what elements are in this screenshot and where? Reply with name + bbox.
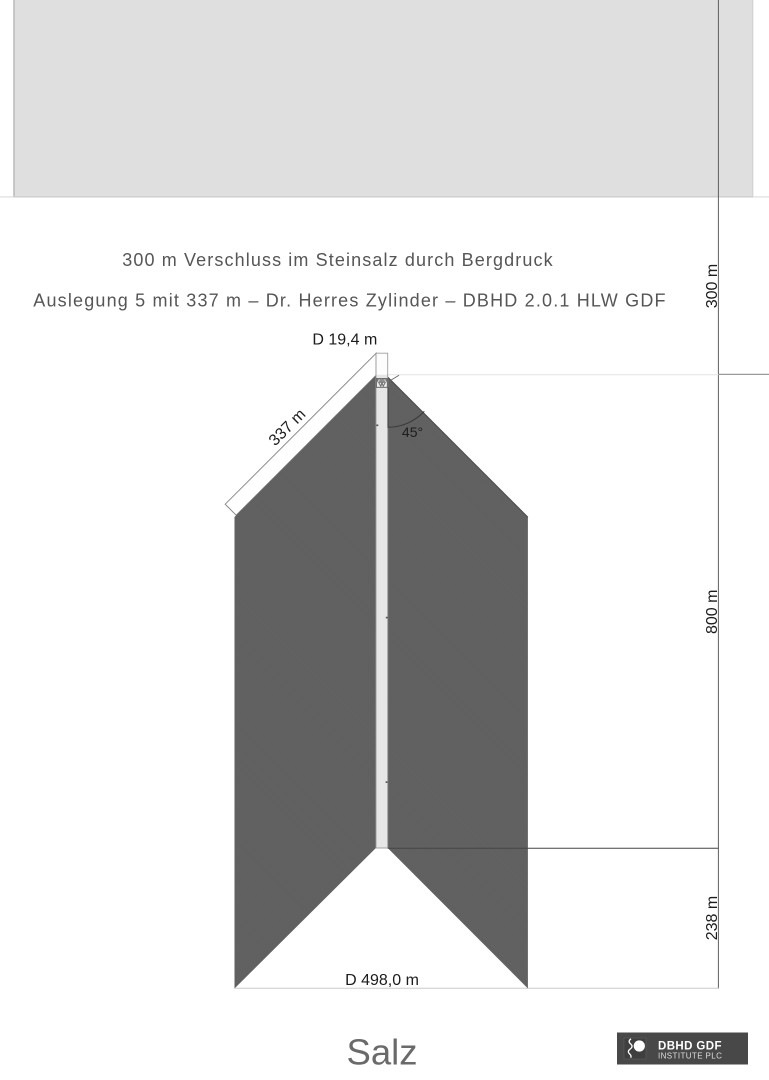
svg-text:D 498,0 m: D 498,0 m — [345, 972, 419, 989]
svg-text:300 m: 300 m — [704, 264, 721, 308]
svg-text:Auslegung 5 mit 337 m – Dr. He: Auslegung 5 mit 337 m – Dr. Herres Zylin… — [33, 291, 666, 311]
svg-text:800 m: 800 m — [704, 590, 721, 634]
svg-text:Salz: Salz — [346, 1032, 417, 1073]
svg-text:45°: 45° — [402, 424, 423, 440]
svg-text:300 m Verschluss im Steinsalz: 300 m Verschluss im Steinsalz durch Berg… — [122, 250, 554, 270]
svg-text:INSTITUTE PLC: INSTITUTE PLC — [658, 1052, 722, 1061]
svg-text:D 19,4 m: D 19,4 m — [312, 331, 377, 348]
svg-text:238 m: 238 m — [704, 896, 721, 940]
